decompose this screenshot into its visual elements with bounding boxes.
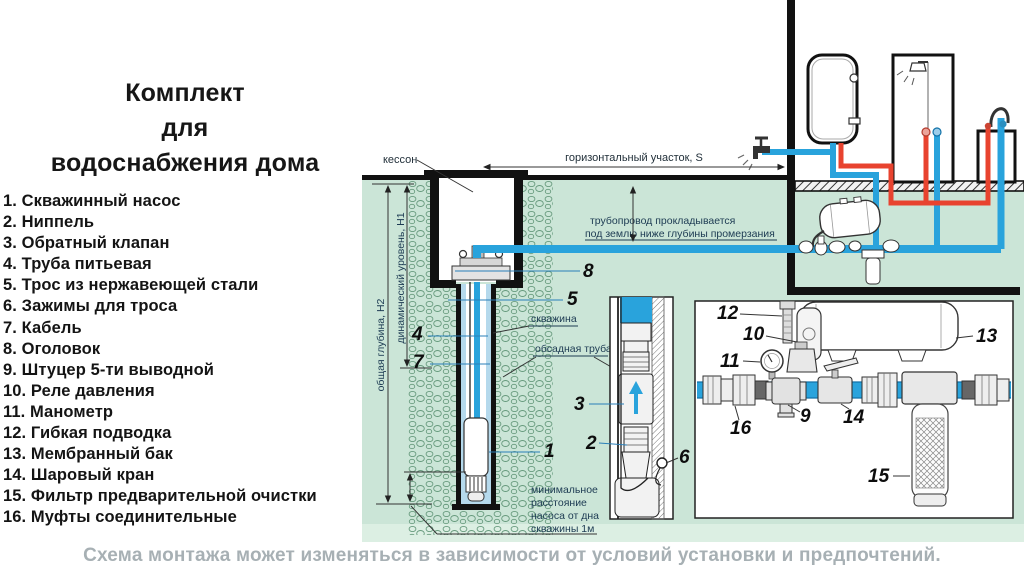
water-supply-scheme-page: Комплект для водоснабжения дома 1. Скваж… — [0, 0, 1024, 576]
casing-pipe-label: обсадная труба — [535, 343, 612, 355]
water-in-casing — [620, 297, 652, 323]
min-distance-line2: расстояние — [531, 497, 587, 509]
callout-11: 11 — [720, 351, 740, 372]
callout-8: 8 — [583, 261, 594, 282]
foundation-line — [787, 287, 1020, 295]
total-depth-label: общая глубина, Н2 — [375, 298, 387, 391]
pump-detail-panel — [610, 297, 673, 519]
shower-cabin — [893, 55, 953, 182]
water-heater — [808, 55, 860, 143]
footer-note: Схема монтажа может изменяться в зависим… — [0, 545, 1024, 567]
min-distance-line1: минимальное — [531, 484, 598, 496]
sink-cabinet — [978, 131, 1015, 182]
callout-1: 1 — [544, 441, 555, 462]
sink-faucet-icon — [985, 109, 1008, 130]
callout-12: 12 — [717, 303, 739, 324]
casing-bottom — [452, 504, 500, 510]
callout-5: 5 — [567, 289, 578, 310]
casing-wall-right — [491, 284, 496, 506]
submersible-pump — [464, 418, 488, 501]
min-distance-line3: насоса от дна — [531, 510, 599, 522]
horizontal-section-label: горизонтальный участок, S — [565, 152, 703, 164]
callout-7: 7 — [413, 352, 425, 373]
union-fitting — [862, 373, 897, 407]
callout-3: 3 — [574, 394, 585, 415]
well-label: скважина — [531, 313, 577, 325]
callout-16: 16 — [730, 418, 752, 439]
casing-wall-left — [456, 284, 461, 506]
cable-clamp — [657, 458, 667, 468]
caisson-label: кессон — [383, 154, 417, 166]
callout-15: 15 — [868, 466, 890, 487]
callout-14: 14 — [843, 407, 865, 428]
callout-10: 10 — [743, 324, 765, 345]
installation-diagram: общая глубина, Н2 динамический уровень, … — [0, 0, 1024, 576]
callout-2: 2 — [585, 433, 597, 454]
dynamic-level-label: динамический уровень, Н1 — [395, 212, 407, 343]
shower-hot-valve — [922, 128, 930, 136]
min-distance-line4: скважины 1м — [531, 523, 594, 535]
callout-9: 9 — [800, 406, 811, 427]
callout-6: 6 — [679, 447, 690, 468]
caisson-lid — [424, 170, 528, 178]
well-borehole — [452, 252, 500, 510]
pipeline-note-line2: под землю ниже глубины промерзания — [585, 228, 775, 240]
shower-cold-valve — [933, 128, 941, 136]
callout-13: 13 — [976, 326, 998, 347]
pipeline-note-line1: трубопровод прокладывается — [590, 215, 735, 227]
callout-4: 4 — [411, 324, 423, 345]
